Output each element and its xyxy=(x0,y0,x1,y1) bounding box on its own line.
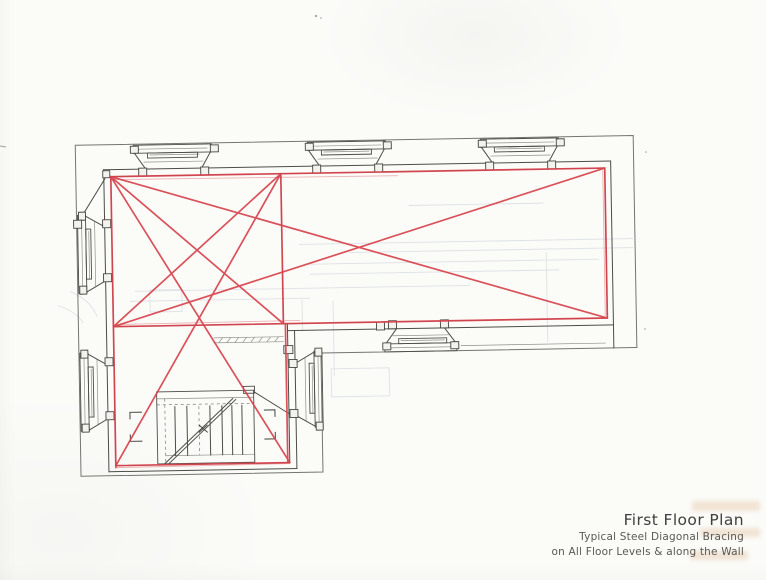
platform-outline xyxy=(75,136,639,477)
drawing-subtitle-line2: on All Floor Levels & along the Wall xyxy=(424,545,744,559)
floor-plan-canvas xyxy=(0,0,766,580)
ink-bleed-smudge xyxy=(692,501,760,511)
title-block: First Floor Plan Typical Steel Diagonal … xyxy=(424,511,744,559)
scanned-drawing-page: { "title_block": { "title": "First Floor… xyxy=(0,0,766,580)
light-detail-lines xyxy=(80,141,607,457)
dashed-detail-lines xyxy=(157,397,255,462)
drawing-title: First Floor Plan xyxy=(424,511,744,530)
drawing-subtitle-line1: Typical Steel Diagonal Bracing xyxy=(424,530,744,544)
red-diagonal-bracing xyxy=(111,168,610,468)
